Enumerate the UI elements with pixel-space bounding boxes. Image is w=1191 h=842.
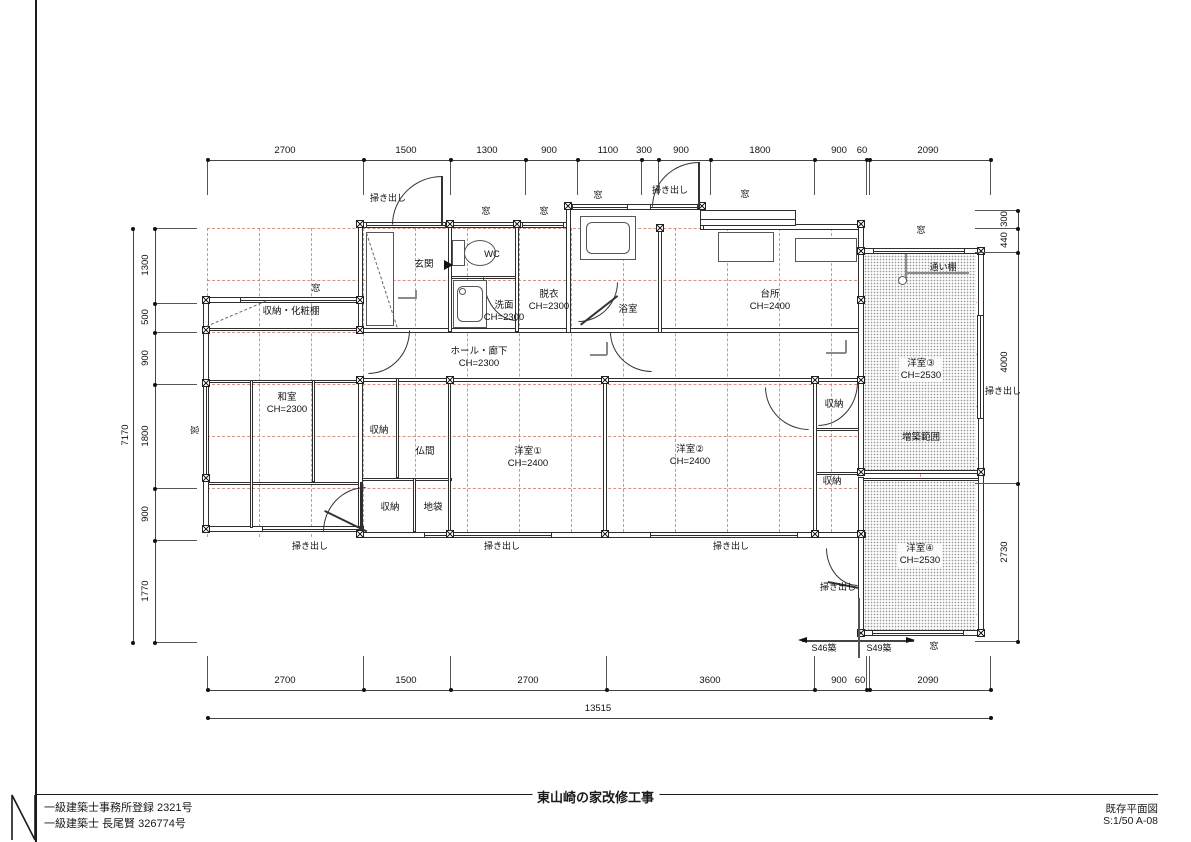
- kayoidana-circle: [898, 276, 907, 285]
- door-gap: [859, 382, 863, 426]
- dim-dot: [605, 688, 609, 692]
- step-line: [845, 340, 847, 353]
- post: [446, 376, 454, 384]
- dim-dot: [206, 716, 210, 720]
- dim-tick: [155, 228, 197, 229]
- dim-dot: [362, 158, 366, 162]
- room-ceiling-height: CH=2300: [267, 404, 307, 416]
- post: [202, 326, 210, 334]
- room-label-yoshitsu2: 洋室②CH=2400: [670, 444, 710, 468]
- post: [857, 247, 865, 255]
- grid-line: [207, 436, 862, 437]
- dim-dot: [1016, 227, 1020, 231]
- dim-tick: [155, 540, 197, 541]
- dim-line-bottom: [207, 690, 991, 691]
- dim-dot: [153, 487, 157, 491]
- wall: [858, 478, 984, 481]
- dim-tick: [710, 160, 711, 195]
- window: [240, 297, 358, 303]
- license-line-1: 一級建築士事務所登録 2321号: [44, 799, 193, 815]
- dim-tick: [155, 488, 197, 489]
- label-dims-bottom-segs-2: 2700: [517, 676, 538, 686]
- drawing-sheet: 玄関WC洗面CH=2300脱衣CH=2300浴室台所CH=2400ホール・廊下C…: [0, 0, 1191, 842]
- label-dims-bottom-segs-0: 2700: [274, 676, 295, 686]
- s49-label: S49築: [866, 644, 891, 654]
- dim-dot: [576, 158, 580, 162]
- wall: [566, 204, 571, 333]
- room-name: 洋室①: [508, 446, 548, 458]
- door-arc: [578, 282, 618, 322]
- dim-tick: [866, 160, 867, 195]
- dim-dot: [153, 641, 157, 645]
- step-line: [415, 290, 417, 299]
- wall: [858, 222, 864, 474]
- dim-dot: [989, 688, 993, 692]
- dim-dot: [813, 688, 817, 692]
- room-name: 和室: [267, 392, 307, 404]
- era-divider: [858, 598, 860, 658]
- wall: [360, 478, 452, 481]
- dim-dot: [449, 158, 453, 162]
- dim-dot: [868, 688, 872, 692]
- post: [857, 220, 865, 228]
- label-dims-top-2: 1300: [476, 146, 497, 156]
- dim-dot: [524, 158, 528, 162]
- step-line: [398, 297, 416, 299]
- post: [356, 376, 364, 384]
- post: [857, 530, 865, 538]
- post: [977, 629, 985, 637]
- label-dims-top-7: 1800: [749, 146, 770, 156]
- dim-tick: [990, 656, 991, 691]
- post: [356, 296, 364, 304]
- room-label-yoshitsu1: 洋室①CH=2400: [508, 446, 548, 470]
- room-name: 洋室②: [670, 444, 710, 456]
- room-label-shuno_c: 収納: [824, 399, 843, 411]
- wall: [978, 248, 984, 636]
- post: [977, 468, 985, 476]
- wall: [312, 380, 315, 482]
- room-name: 脱衣: [529, 289, 569, 301]
- label-dims-left-segs-3: 1800: [141, 425, 151, 446]
- kitchen-counter: [795, 238, 857, 262]
- wall: [203, 380, 360, 383]
- grid-line: [519, 228, 520, 537]
- zochiku-annotation: 増築範囲: [902, 433, 940, 443]
- wall: [815, 428, 864, 431]
- dim-dot: [153, 227, 157, 231]
- dim-line-top: [207, 160, 991, 161]
- post: [564, 202, 572, 210]
- post: [202, 296, 210, 304]
- dim-dot: [1016, 251, 1020, 255]
- window: [522, 222, 564, 228]
- label-dims-top-3: 900: [541, 146, 557, 156]
- sheet-border-vertical: [35, 0, 37, 842]
- dim-tick: [814, 656, 815, 691]
- wall: [413, 478, 416, 532]
- kitchen-counter: [718, 232, 774, 262]
- door-arc: [826, 548, 858, 586]
- room-name: 地袋: [423, 502, 442, 514]
- label-dims-top-10: 2090: [917, 146, 938, 156]
- dim-tick: [155, 642, 197, 643]
- mado-label: 窓: [191, 425, 201, 434]
- grid-line: [675, 228, 676, 537]
- kayoidana-label: 通い棚: [929, 263, 956, 273]
- window: [977, 315, 984, 419]
- wall: [858, 470, 984, 474]
- wall: [658, 226, 662, 333]
- room-label-washitsu: 和室CH=2300: [267, 392, 307, 416]
- window: [650, 532, 798, 538]
- label-dims-top-1: 1500: [395, 146, 416, 156]
- room-label-genkan: 玄関: [414, 259, 433, 271]
- room-name: 収納: [380, 502, 399, 514]
- post: [857, 296, 865, 304]
- wall: [396, 378, 399, 478]
- room-name: 洋室③: [901, 358, 941, 370]
- label-dims-top-9: 60: [857, 146, 868, 156]
- hakidashi-label: 掃き出し: [370, 194, 406, 204]
- room-label-shuno_b: 収納: [380, 502, 399, 514]
- dim-dot: [153, 539, 157, 543]
- sheet-scale: S:1/50 A-08: [1103, 815, 1158, 827]
- window: [872, 630, 964, 636]
- dim-tick: [641, 160, 642, 195]
- dim-dot: [362, 688, 366, 692]
- room-name: 仏間: [415, 446, 434, 458]
- post: [356, 326, 364, 334]
- dim-tick: [990, 160, 991, 195]
- project-title: 東山崎の家改修工事: [532, 787, 659, 806]
- wall: [203, 328, 363, 331]
- room-label-yoshitsu3: 洋室③CH=2530: [899, 358, 943, 382]
- arrow-left-icon: [798, 637, 807, 643]
- hakidashi-label: 掃き出し: [292, 542, 328, 552]
- dim-tick: [207, 656, 208, 691]
- room-name: 玄関: [414, 259, 433, 271]
- post: [202, 474, 210, 482]
- grid-line: [623, 228, 624, 537]
- cabinet-diagonal: [206, 301, 266, 327]
- window: [572, 204, 628, 210]
- dim-tick: [450, 656, 451, 691]
- door-arc: [610, 332, 652, 372]
- room-ceiling-height: CH=2300: [529, 301, 569, 313]
- mado-label: 窓: [593, 191, 602, 201]
- dim-dot: [813, 158, 817, 162]
- mado-label: 窓: [916, 226, 925, 236]
- dim-dot: [868, 158, 872, 162]
- mado-label: 窓: [481, 207, 490, 217]
- hakidashi-label: 掃き出し: [985, 387, 1021, 397]
- dim-tick: [363, 160, 364, 195]
- window: [873, 248, 965, 254]
- label-dims-bottom-segs-4: 900: [831, 676, 847, 686]
- room-ceiling-height: CH=2300: [450, 358, 507, 370]
- label-dims-bottom-segs-3: 3600: [699, 676, 720, 686]
- room-name: 洗面: [484, 300, 524, 312]
- dim-dot: [640, 158, 644, 162]
- wall: [250, 380, 253, 528]
- license-line-2: 一級建築士 長尾賢 326774号: [44, 815, 186, 831]
- hakidashi-label: 掃き出し: [820, 583, 856, 593]
- post: [446, 220, 454, 228]
- dim-dot: [989, 716, 993, 720]
- label-dims-top-4: 1100: [598, 146, 618, 156]
- label-dims-right-2: 4000: [1000, 351, 1010, 372]
- dim-tick: [606, 656, 607, 691]
- mado-label: 窓: [311, 284, 320, 294]
- dim-line-left: [155, 228, 156, 642]
- hakidashi-label: 掃き出し: [652, 186, 688, 196]
- sheet-name: 既存平面図: [1106, 801, 1159, 816]
- dim-tick: [975, 641, 1019, 642]
- room-ceiling-height: CH=2400: [670, 456, 710, 468]
- dim-tick: [577, 160, 578, 195]
- label-dims-left-segs-2: 900: [141, 350, 151, 366]
- room-label-yoshitsu4: 洋室④CH=2530: [898, 543, 942, 567]
- label-dims-bottom-segs-1: 1500: [395, 676, 416, 686]
- dim-dot: [131, 227, 135, 231]
- post: [811, 530, 819, 538]
- post: [202, 525, 210, 533]
- total-width-label: 13515: [585, 704, 611, 714]
- room-ceiling-height: CH=2530: [900, 555, 940, 567]
- room-label-yokushitsu: 浴室: [618, 304, 637, 316]
- room-label-shuno_a: 収納: [369, 425, 388, 437]
- dim-dot: [206, 688, 210, 692]
- hakidashi-label: 掃き出し: [484, 542, 520, 552]
- label-dims-top-0: 2700: [274, 146, 295, 156]
- wall: [448, 378, 451, 532]
- room-label-wc: WC: [484, 249, 500, 261]
- label-dims-left-segs-5: 1770: [141, 580, 151, 601]
- dim-tick: [869, 160, 870, 195]
- step-line: [590, 354, 607, 356]
- room-name: 収納: [369, 425, 388, 437]
- hakidashi-label: 掃き出し: [713, 542, 749, 552]
- post: [601, 376, 609, 384]
- dim-tick: [450, 160, 451, 195]
- room-ceiling-height: CH=2530: [901, 370, 941, 382]
- grid-line: [571, 228, 572, 537]
- label-dims-top-8: 900: [831, 146, 847, 156]
- mado-label: 窓: [929, 642, 938, 652]
- post: [977, 247, 985, 255]
- grid-line: [779, 228, 780, 537]
- wall: [203, 482, 363, 485]
- dim-dot: [1016, 640, 1020, 644]
- grid-line: [207, 280, 862, 281]
- post: [446, 530, 454, 538]
- dim-line-right: [1018, 210, 1019, 641]
- dim-tick: [869, 656, 870, 691]
- washbasin-tap: [459, 288, 466, 295]
- post: [656, 224, 664, 232]
- dim-dot: [153, 383, 157, 387]
- label-dims-top-5: 300: [636, 146, 652, 156]
- window: [452, 222, 516, 228]
- dim-dot: [1016, 209, 1020, 213]
- grid-line: [207, 384, 862, 385]
- dim-dot: [1016, 482, 1020, 486]
- wall: [358, 222, 363, 333]
- mado-label: 窓: [740, 190, 749, 200]
- post: [857, 468, 865, 476]
- room-name: WC: [484, 249, 500, 261]
- total-height-label: 7170: [121, 424, 131, 445]
- room-label-hall: ホール・廊下CH=2300: [450, 346, 507, 370]
- room-label-jibukuro: 地袋: [423, 502, 442, 514]
- label-dims-left-segs-0: 1300: [141, 254, 151, 275]
- dim-tick: [866, 656, 867, 691]
- post: [202, 379, 210, 387]
- wall: [358, 378, 865, 382]
- room-name: 洋室④: [900, 543, 940, 555]
- dim-dot: [153, 302, 157, 306]
- dim-dot: [131, 641, 135, 645]
- wall: [448, 222, 452, 332]
- dim-line-bottom-total: [207, 718, 991, 719]
- room-label-shuno_kesho: 収納・化粧棚: [262, 306, 319, 318]
- room-ceiling-height: CH=2400: [750, 301, 790, 313]
- room-label-shuno_d: 収納: [822, 476, 841, 488]
- room-name: 台所: [750, 289, 790, 301]
- wall: [603, 378, 607, 536]
- room-label-daidokoro: 台所CH=2400: [750, 289, 790, 313]
- grid-line: [207, 488, 862, 489]
- door-arc: [765, 387, 809, 430]
- post: [857, 376, 865, 384]
- floor-plan: 玄関WC洗面CH=2300脱衣CH=2300浴室台所CH=2400ホール・廊下C…: [0, 0, 1191, 842]
- bathtub-inner: [586, 222, 630, 254]
- post: [601, 530, 609, 538]
- dim-dot: [206, 158, 210, 162]
- dim-tick: [975, 252, 1019, 253]
- dim-dot: [657, 158, 661, 162]
- dim-tick: [155, 384, 197, 385]
- window: [424, 532, 552, 538]
- dim-dot: [989, 158, 993, 162]
- dim-tick: [814, 160, 815, 195]
- label-dims-right-1: 440: [1000, 232, 1010, 248]
- room-name: 収納: [822, 476, 841, 488]
- dim-tick: [207, 160, 208, 195]
- mado-label: 窓: [539, 207, 548, 217]
- room-name: ホール・廊下: [450, 346, 507, 358]
- grid-line: [727, 228, 728, 537]
- dim-tick: [155, 303, 197, 304]
- dim-tick: [975, 228, 1019, 229]
- room-name: 浴室: [618, 304, 637, 316]
- door-arc: [323, 487, 366, 532]
- arrow-right-icon: [906, 637, 915, 643]
- north-mark-icon: [7, 792, 39, 842]
- dim-line-left-total: [133, 228, 134, 642]
- room-label-senmen: 洗面CH=2300: [484, 300, 524, 324]
- label-dims-bottom-segs-5: 60: [855, 676, 866, 686]
- door-leaf: [698, 162, 700, 208]
- room-name: 収納・化粧棚: [262, 306, 319, 318]
- dim-tick: [525, 160, 526, 195]
- door-arc: [368, 330, 410, 374]
- door-leaf: [441, 176, 443, 226]
- grid-line: [467, 228, 468, 537]
- step-line: [826, 352, 846, 354]
- entrance-marker: [444, 260, 453, 270]
- label-dims-left-segs-1: 500: [141, 309, 151, 325]
- post: [513, 220, 521, 228]
- step-line: [606, 342, 608, 355]
- post: [356, 220, 364, 228]
- window: [203, 382, 209, 478]
- dim-dot: [449, 688, 453, 692]
- label-dims-top-6: 900: [673, 146, 689, 156]
- room-name: 収納: [824, 399, 843, 411]
- dim-tick: [363, 656, 364, 691]
- dim-dot: [709, 158, 713, 162]
- label-dims-right-0: 300: [1000, 211, 1010, 227]
- wall: [813, 378, 817, 536]
- dim-tick: [975, 483, 1019, 484]
- room-ceiling-height: CH=2300: [484, 312, 524, 324]
- kitchen-bay-window: [700, 210, 796, 226]
- label-dims-right-3: 2730: [1000, 541, 1010, 562]
- room-label-butsuma: 仏間: [415, 446, 434, 458]
- s46-label: S46築: [811, 644, 836, 654]
- label-dims-bottom-segs-6: 2090: [917, 676, 938, 686]
- room-ceiling-height: CH=2400: [508, 458, 548, 470]
- label-dims-left-segs-4: 900: [141, 506, 151, 522]
- door-gap: [859, 300, 863, 346]
- dim-dot: [153, 331, 157, 335]
- dim-tick: [975, 210, 1019, 211]
- dim-tick: [155, 332, 197, 333]
- room-label-datsui: 脱衣CH=2300: [529, 289, 569, 313]
